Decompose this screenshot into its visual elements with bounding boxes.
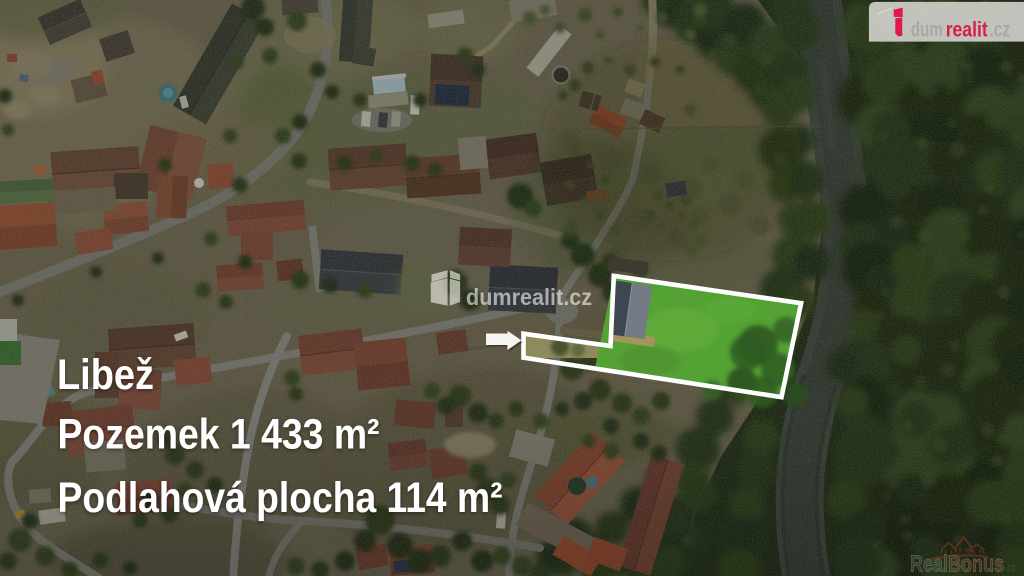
svg-text:Pozemek 1 433 m²: Pozemek 1 433 m² [58,412,380,459]
svg-text:Podlahová plocha 114 m²: Podlahová plocha 114 m² [58,475,503,522]
svg-text:.cz: .cz [989,18,1010,41]
svg-text:Bonus: Bonus [948,551,1004,576]
svg-text:Libež: Libež [57,352,154,399]
svg-text:dum: dum [911,18,943,41]
svg-text:dumrealit.cz: dumrealit.cz [466,284,592,310]
svg-text:.cz: .cz [1005,561,1015,575]
svg-text:realit: realit [946,18,988,41]
svg-text:Real: Real [910,551,948,576]
